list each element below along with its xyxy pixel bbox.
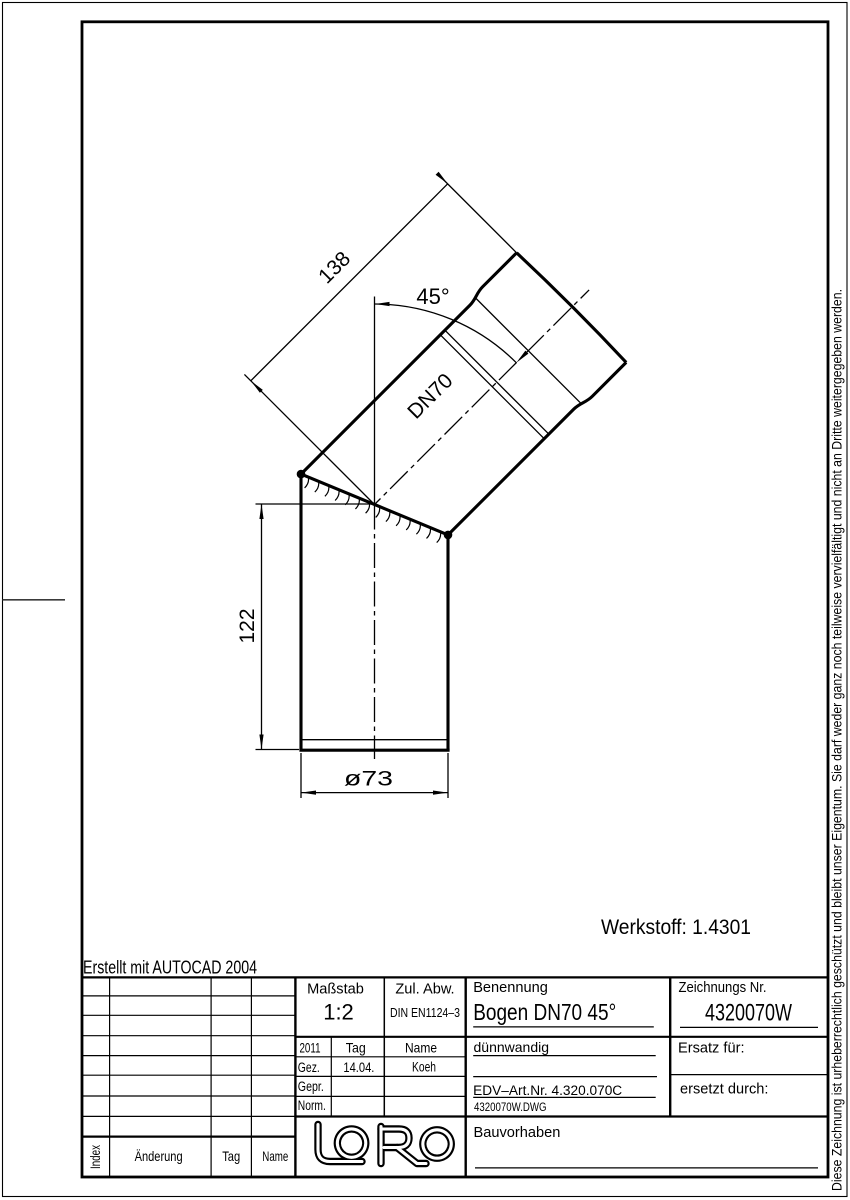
svg-text:ø73: ø73 bbox=[344, 768, 393, 791]
svg-text:Gepr.: Gepr. bbox=[298, 1079, 324, 1094]
svg-text:Koeh: Koeh bbox=[412, 1059, 436, 1075]
svg-text:1:2: 1:2 bbox=[323, 999, 354, 1024]
svg-text:DIN EN1124–3: DIN EN1124–3 bbox=[390, 1005, 460, 1020]
svg-text:Tag: Tag bbox=[222, 1148, 240, 1164]
svg-text:Ersatz für:: Ersatz für: bbox=[678, 1040, 745, 1056]
svg-text:Bauvorhaben: Bauvorhaben bbox=[474, 1125, 561, 1141]
svg-text:4320070W.DWG: 4320070W.DWG bbox=[474, 1100, 547, 1114]
svg-text:Index: Index bbox=[87, 1145, 103, 1169]
svg-text:Änderung: Änderung bbox=[135, 1148, 183, 1164]
svg-text:Maßstab: Maßstab bbox=[307, 981, 364, 997]
svg-text:Zeichnungs Nr.: Zeichnungs Nr. bbox=[679, 980, 767, 996]
svg-text:2011: 2011 bbox=[300, 1041, 321, 1056]
svg-text:Erstellt mit AUTOCAD 2004: Erstellt mit AUTOCAD 2004 bbox=[83, 958, 257, 978]
svg-text:Diese Zeichnung ist urheberrec: Diese Zeichnung ist urheberrechtlich ges… bbox=[830, 289, 845, 1191]
svg-text:45°: 45° bbox=[416, 284, 449, 309]
svg-text:122: 122 bbox=[236, 608, 259, 643]
svg-text:Zul. Abw.: Zul. Abw. bbox=[395, 982, 454, 998]
svg-text:Name: Name bbox=[405, 1040, 437, 1056]
svg-text:14.04.: 14.04. bbox=[343, 1060, 374, 1075]
svg-text:dünnwandig: dünnwandig bbox=[474, 1039, 550, 1055]
svg-text:EDV–Art.Nr. 4.320.070C: EDV–Art.Nr. 4.320.070C bbox=[473, 1083, 622, 1098]
svg-text:Tag: Tag bbox=[346, 1039, 366, 1055]
svg-text:4320070W: 4320070W bbox=[705, 1000, 792, 1027]
svg-text:Bogen DN70 45°: Bogen DN70 45° bbox=[473, 999, 616, 1025]
svg-text:Norm.: Norm. bbox=[298, 1098, 326, 1113]
svg-text:Name: Name bbox=[262, 1148, 288, 1164]
svg-text:Benennung: Benennung bbox=[473, 980, 548, 996]
svg-text:ersetzt durch:: ersetzt durch: bbox=[680, 1082, 768, 1098]
svg-text:Gez.: Gez. bbox=[298, 1060, 320, 1075]
svg-text:Werkstoff: 1.4301: Werkstoff: 1.4301 bbox=[601, 916, 751, 939]
